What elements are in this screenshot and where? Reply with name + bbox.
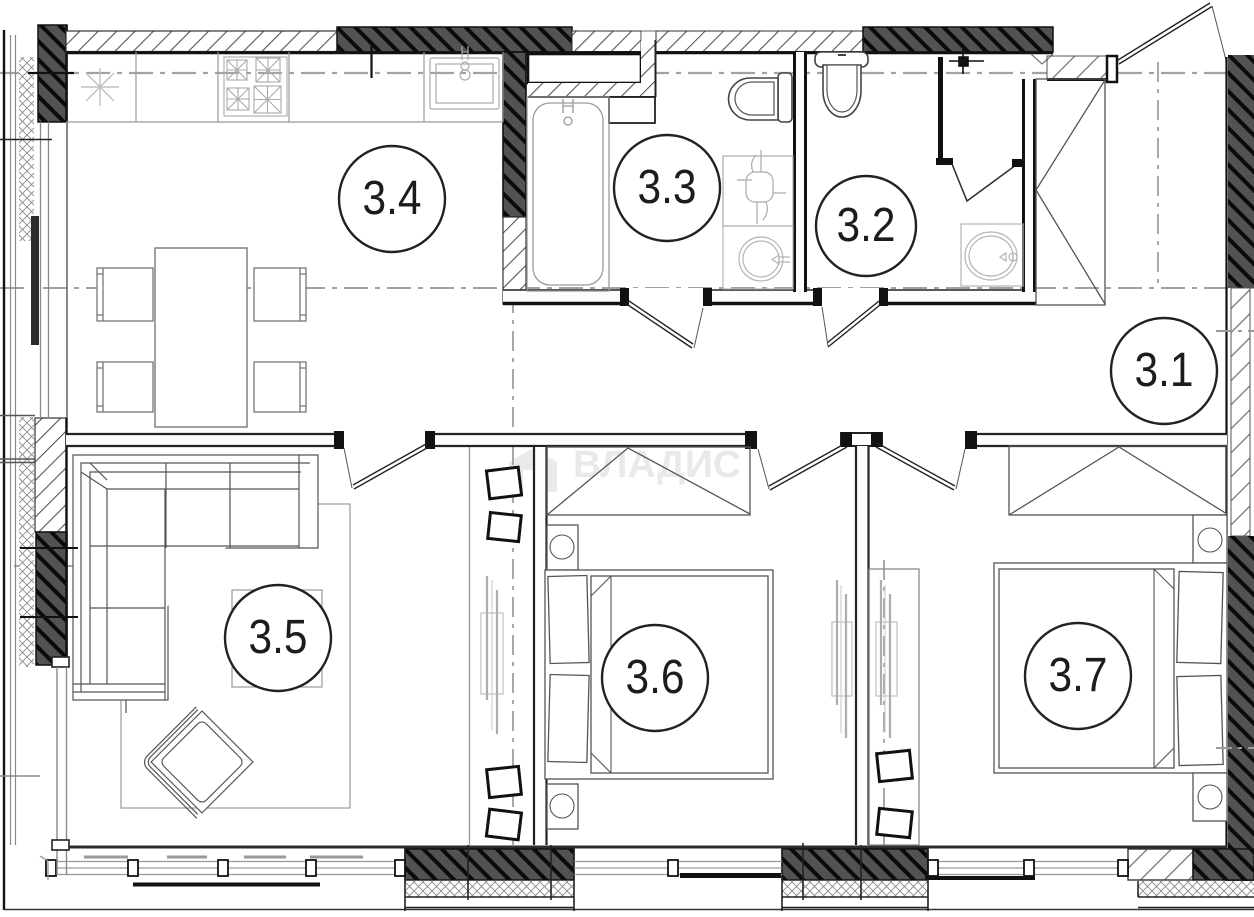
svg-text:3.4: 3.4	[363, 171, 422, 225]
svg-text:3.5: 3.5	[249, 610, 308, 664]
svg-text:3.1: 3.1	[1135, 343, 1194, 397]
svg-text:3.6: 3.6	[626, 650, 685, 704]
svg-text:ВЛАДИС: ВЛАДИС	[573, 444, 741, 486]
svg-text:3.7: 3.7	[1049, 648, 1108, 702]
svg-text:3.3: 3.3	[638, 160, 697, 214]
svg-text:3.2: 3.2	[837, 198, 896, 252]
